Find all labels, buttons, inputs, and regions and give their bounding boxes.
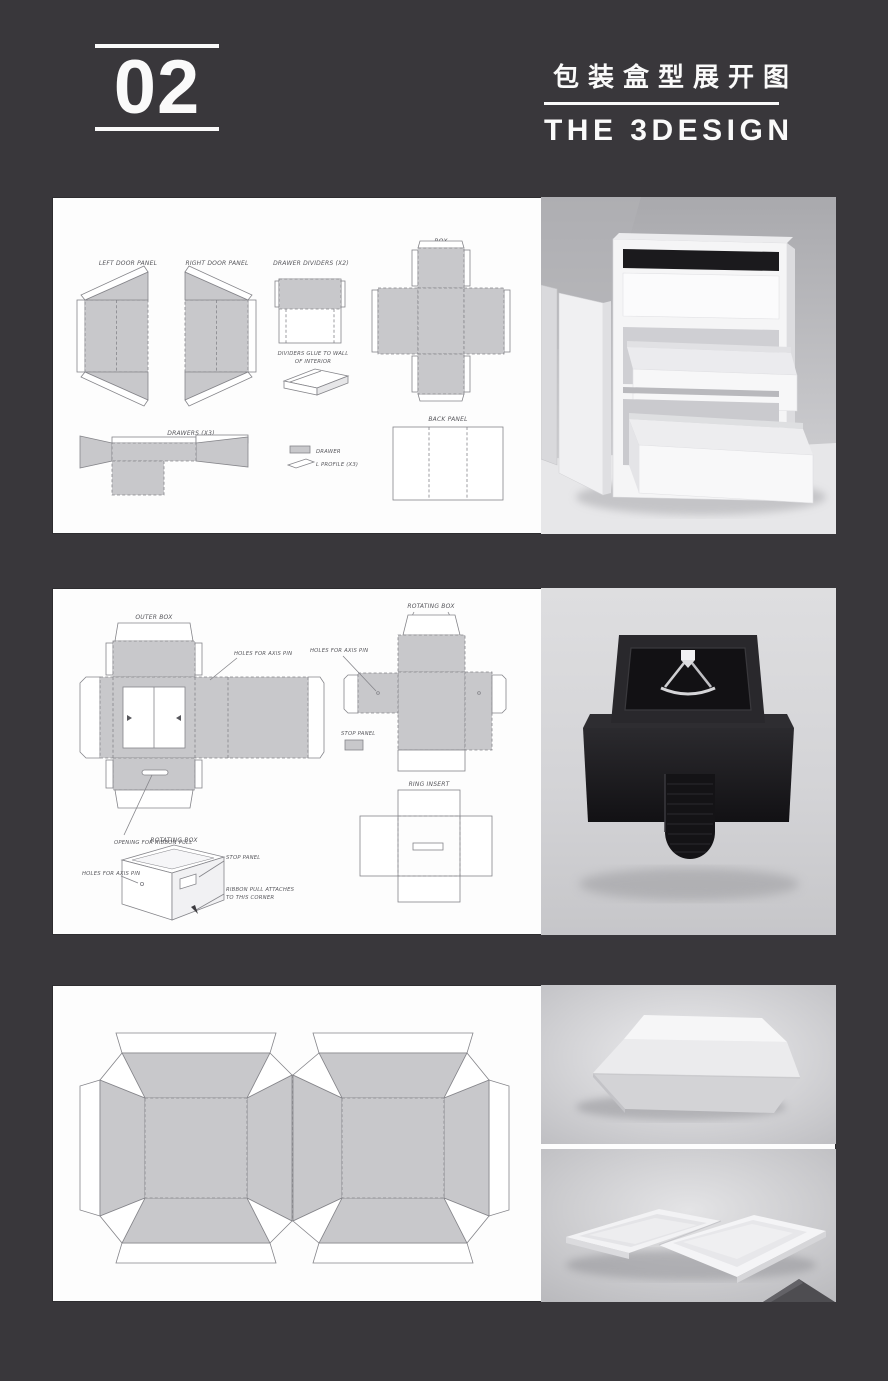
dieline-box: BOX [372,238,510,401]
divider-glue-note: DIVIDERS GLUE TO WALL OF INTERIOR [278,351,349,395]
section-number: 02 [95,48,219,127]
legend-profile-swatch [288,459,314,468]
dieline-right-door-panel: RIGHT DOOR PANEL [185,260,256,406]
section-number-block: 02 [95,44,219,131]
label-drawer-dividers: DRAWER DIVIDERS (X2) [273,260,349,267]
label-legend-profile: L PROFILE (X3) [316,462,358,468]
label-ring-insert: RING INSERT [409,781,451,788]
dieline-clamshell [80,1033,509,1263]
label-holes-axis-2: HOLES FOR AXIS PIN [310,648,368,654]
clamshell-dieline-drawing [52,985,542,1302]
label-right-door-panel: RIGHT DOOR PANEL [185,260,248,267]
label-rotating-box: ROTATING BOX [407,603,455,610]
poster-page: { "page": { "background": "#39373b", "pa… [0,0,888,1381]
label-outer-box: OUTER BOX [135,614,173,621]
ring-box-photo [541,588,836,935]
dieline-stop-panel: STOP PANEL [341,731,375,750]
label-sketch-holes: HOLES FOR AXIS PIN [82,871,140,877]
label-divider-note-1: DIVIDERS GLUE TO WALL [278,351,349,357]
dieline-legend: DRAWER L PROFILE (X3) [288,446,358,468]
label-legend-drawer: DRAWER [316,449,341,455]
open-box-photo [541,1149,836,1302]
header-title-block: 包装盒型展开图 THE 3DESIGN [544,57,789,148]
ring-box-dieline-drawing: OUTER BOX OPENING FOR RIBBON PULL [52,588,542,935]
dieline-rotating-box: ROTATING BOX HOLES FOR AXIS PIN [310,603,506,771]
dieline-ring-insert: RING INSERT [360,781,492,902]
legend-drawer-swatch [290,446,310,453]
panel-drawer-box: LEFT DOOR PANEL RIGHT DOOR PANEL DRAWER … [52,197,836,534]
title-underline [544,102,779,105]
page-title-en: THE 3DESIGN [544,114,794,148]
dieline-back-panel: BACK PANEL [393,416,503,500]
drawer-box-photo [541,197,836,534]
label-back-panel: BACK PANEL [428,416,467,423]
panel-clamshell-box [52,985,836,1302]
label-sketch-ribbon-1: RIBBON PULL ATTACHES [226,887,295,893]
label-stop-panel: STOP PANEL [341,731,375,737]
dieline-drawer-dividers: DRAWER DIVIDERS (X2) [273,260,349,343]
label-sketch-ribbon-2: TO THIS CORNER [226,895,274,901]
label-sketch-title: ROTATING BOX [150,837,198,844]
label-left-door-panel: LEFT DOOR PANEL [99,260,157,267]
dieline-left-door-panel: LEFT DOOR PANEL [77,260,157,406]
panel-ring-box: OUTER BOX OPENING FOR RIBBON PULL [52,588,836,935]
dieline-outer-box: OUTER BOX OPENING FOR RIBBON PULL [80,614,324,846]
rotating-box-sketch: ROTATING BOX HOLES FOR AXIS PIN STOP PAN… [82,837,295,920]
closed-box-photo [541,985,836,1144]
dieline-drawers: DRAWERS (X3) [80,430,248,495]
label-sketch-stop: STOP PANEL [226,855,260,861]
drawer-box-dieline-drawing: LEFT DOOR PANEL RIGHT DOOR PANEL DRAWER … [52,197,542,534]
page-title-zh: 包装盒型展开图 [544,57,798,94]
label-divider-note-2: OF INTERIOR [295,359,331,365]
label-holes-axis-1: HOLES FOR AXIS PIN [234,651,292,657]
